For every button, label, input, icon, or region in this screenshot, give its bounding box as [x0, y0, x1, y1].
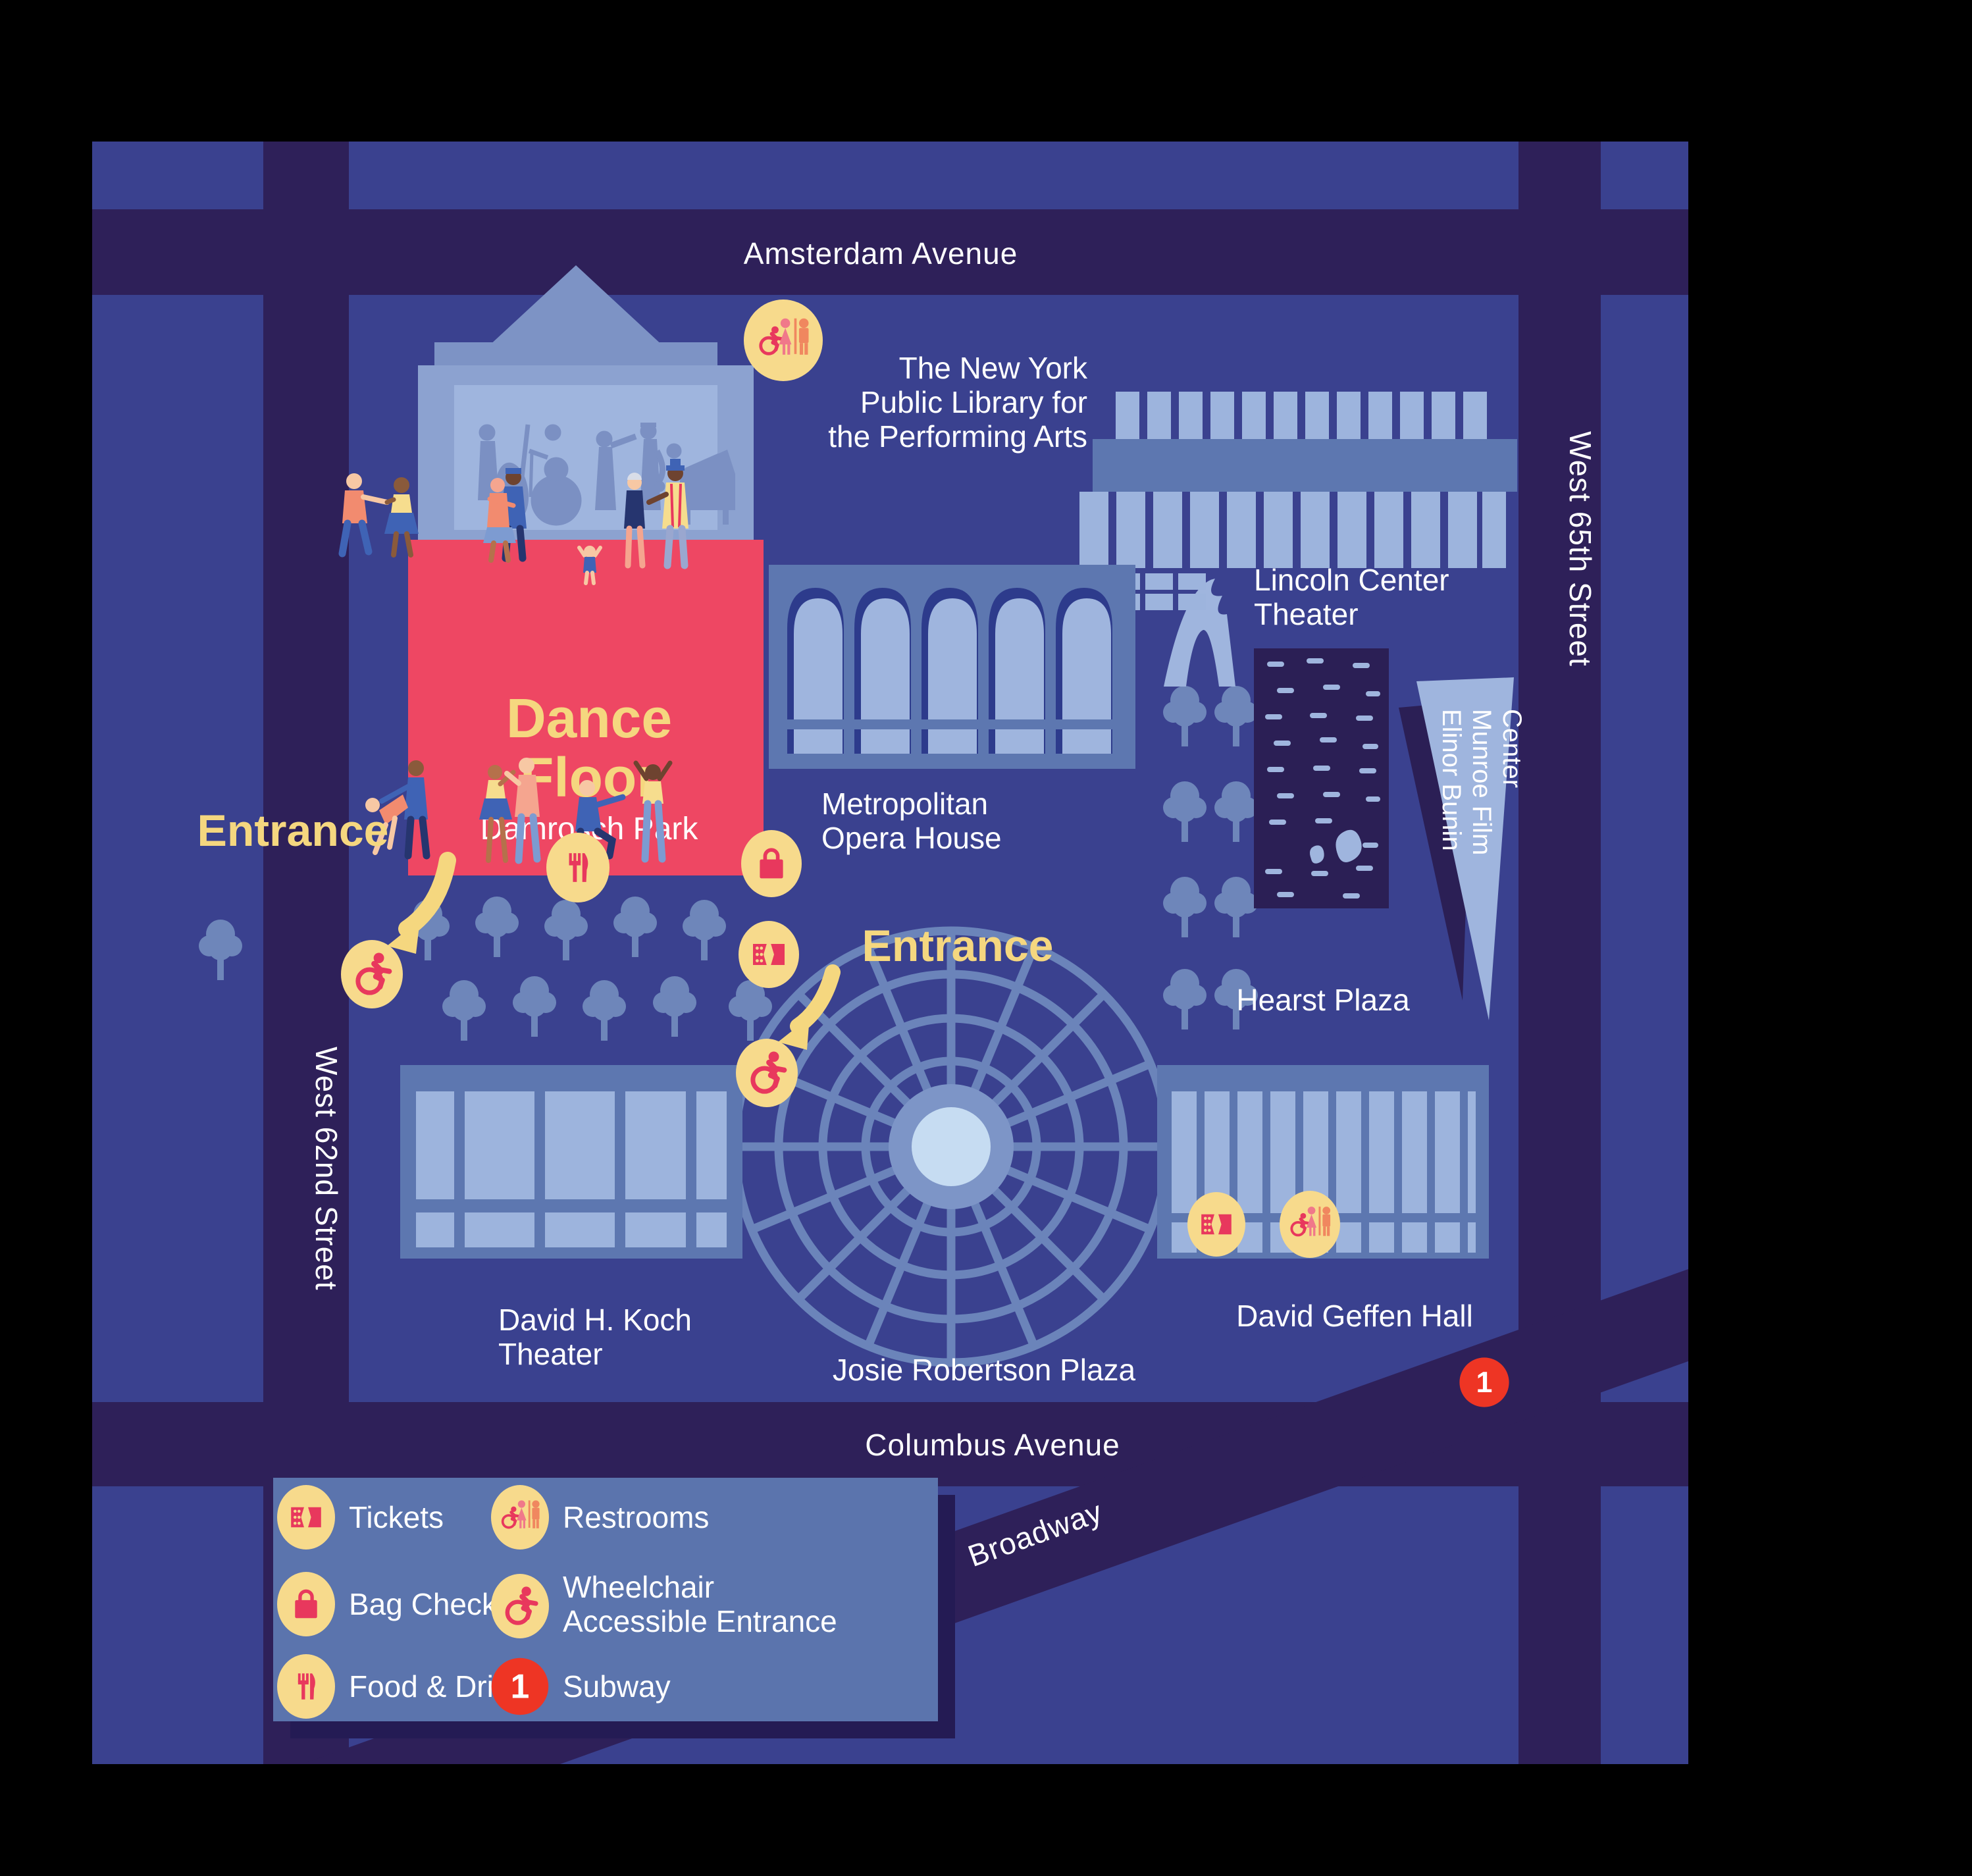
- legend-wheelchair-label-line2: Accessible Entrance: [563, 1604, 837, 1638]
- restrooms-icon-geffen: [1280, 1191, 1340, 1258]
- svg-text:Center: Center: [1497, 709, 1526, 788]
- legend-tickets-label: Tickets: [349, 1500, 444, 1534]
- svg-text:Public Library for: Public Library for: [860, 385, 1087, 419]
- svg-text:Lincoln Center: Lincoln Center: [1254, 563, 1449, 597]
- wheelchair-entrance-icon-plaza: [736, 1039, 798, 1107]
- svg-text:Opera House: Opera House: [821, 821, 1002, 855]
- bag-check-icon: [741, 830, 802, 897]
- svg-text:Metropolitan: Metropolitan: [821, 787, 988, 821]
- legend-restrooms-label: Restrooms: [563, 1500, 709, 1534]
- svg-text:David H. Koch: David H. Koch: [498, 1303, 692, 1337]
- koch-theater-building: [400, 1065, 742, 1259]
- subway-icon: [1459, 1357, 1509, 1407]
- geffen-hall-label: David Geffen Hall: [1236, 1299, 1473, 1333]
- entrance-left-label: Entrance: [197, 806, 389, 856]
- svg-text:Munroe Film: Munroe Film: [1467, 709, 1496, 855]
- legend-wheelchair-icon: [491, 1574, 549, 1638]
- legend-tickets-icon: [277, 1485, 335, 1550]
- food-drink-icon: [546, 833, 610, 902]
- josie-robertson-plaza-label: Josie Robertson Plaza: [833, 1353, 1136, 1387]
- legend: Tickets Bag Check Food & Drink Restrooms…: [273, 1478, 955, 1738]
- west-62nd-label: West 62nd Street: [309, 1047, 344, 1291]
- legend-bag-check-label: Bag Check: [349, 1587, 498, 1621]
- plaza-fountain: [912, 1107, 991, 1186]
- street-west-65th: [1518, 142, 1601, 1764]
- svg-text:the Performing Arts: the Performing Arts: [828, 419, 1087, 454]
- lincoln-center-map: 1: [0, 0, 1972, 1876]
- map-canvas: 1: [0, 0, 1972, 1876]
- met-opera-label: Metropolitan Opera House: [821, 787, 1002, 855]
- legend-wheelchair-label-line1: Wheelchair: [563, 1570, 714, 1604]
- reflecting-pool: [1254, 648, 1389, 908]
- amsterdam-avenue-label: Amsterdam Avenue: [744, 236, 1018, 271]
- legend-bag-check-icon: [277, 1572, 335, 1636]
- josie-robertson-plaza: [735, 931, 1167, 1363]
- hearst-plaza-label: Hearst Plaza: [1236, 983, 1410, 1017]
- legend-subway-label: Subway: [563, 1669, 671, 1704]
- tickets-icon: [739, 921, 799, 988]
- dance-floor-title-line1: Dance: [506, 687, 672, 749]
- svg-text:Theater: Theater: [498, 1337, 603, 1371]
- legend-restrooms-icon: [491, 1485, 549, 1550]
- met-opera-building: [769, 565, 1135, 769]
- svg-text:The New York: The New York: [899, 351, 1088, 385]
- wheelchair-entrance-icon-west: [341, 940, 403, 1008]
- svg-text:Elinor Bunin: Elinor Bunin: [1437, 709, 1466, 851]
- entrance-right-label: Entrance: [862, 921, 1054, 971]
- columbus-avenue-label: Columbus Avenue: [865, 1428, 1120, 1462]
- svg-text:Theater: Theater: [1254, 597, 1359, 631]
- legend-subway-icon: [492, 1658, 548, 1715]
- tickets-icon-geffen: [1187, 1192, 1245, 1257]
- legend-food-drink-icon: [277, 1654, 335, 1719]
- map-area: Dance Floor Damrosch Park: [92, 142, 1688, 1764]
- restrooms-icon: [744, 300, 823, 381]
- west-65th-label: West 65th Street: [1563, 431, 1597, 667]
